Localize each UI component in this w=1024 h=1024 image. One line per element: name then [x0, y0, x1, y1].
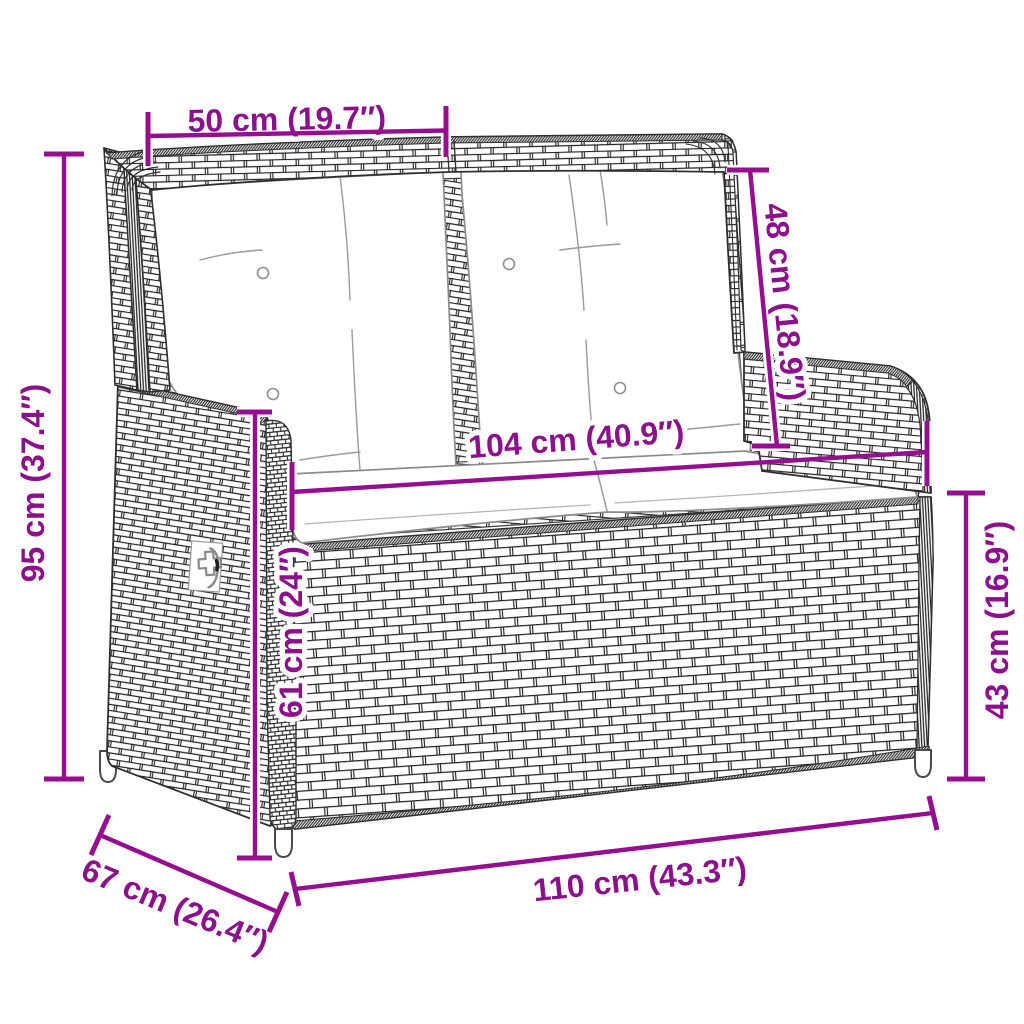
svg-text:43 cm (16.9″): 43 cm (16.9″) [979, 521, 1015, 720]
svg-text:95 cm (37.4″): 95 cm (37.4″) [15, 384, 51, 583]
svg-text:61 cm (24″): 61 cm (24″) [273, 546, 309, 718]
svg-text:50 cm (19.7″): 50 cm (19.7″) [187, 99, 386, 139]
